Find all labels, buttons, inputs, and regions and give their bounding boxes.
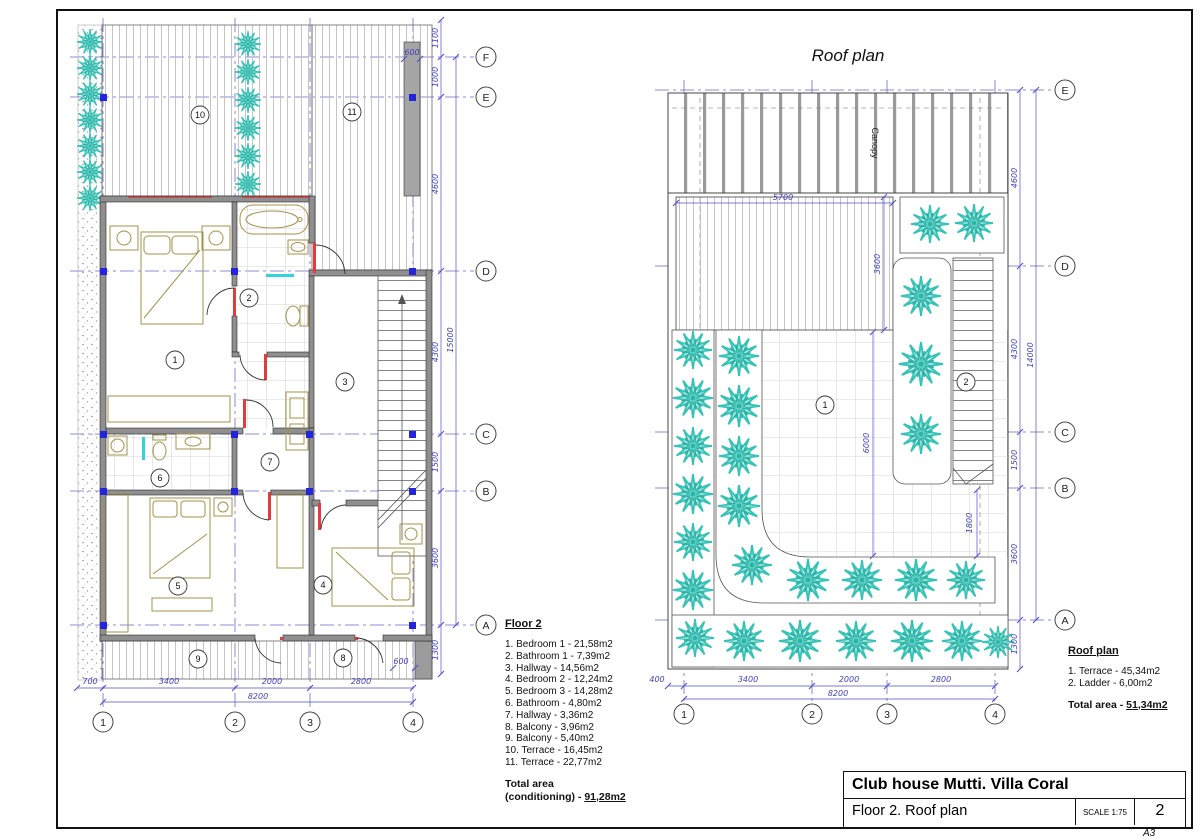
bathroom2-tiles: [106, 434, 232, 490]
legend-item: 5. Bedroom 3 - 14,28m2: [505, 686, 660, 698]
grid-label: E: [1061, 85, 1068, 97]
room-label: 2: [963, 377, 968, 387]
grid-label: B: [482, 486, 489, 498]
dim-label: 1000: [431, 67, 440, 87]
dim-label: 8200: [248, 692, 268, 701]
grid-label: A: [482, 620, 489, 632]
legend-item: 10. Terrace - 16,45m2: [505, 745, 660, 757]
legend-item: 2. Bathroom 1 - 7,39m2: [505, 651, 660, 663]
dim-label: 6000: [862, 433, 871, 453]
floor2-legend-title: Floor 2: [505, 618, 660, 630]
bathroom1-tiles: [237, 202, 309, 428]
project-title: Club house Mutti. Villa Coral: [844, 772, 1185, 799]
roof-total-area: Total area - 51,34m2: [1068, 699, 1186, 712]
room-label: 2: [246, 293, 251, 303]
total-area-value: 91,28m2: [584, 791, 625, 803]
grid-label: 2: [809, 709, 815, 721]
grid-label: 3: [884, 709, 890, 721]
dim-label: 8200: [828, 689, 848, 698]
grid-label: 1: [681, 709, 687, 721]
legend-item: 9. Balcony - 5,40m2: [505, 733, 660, 745]
grid-label: 4: [410, 717, 416, 729]
total-area-prefix: (conditioning) -: [505, 791, 584, 803]
sheet-title: Floor 2. Roof plan: [844, 799, 1075, 825]
dim-label: 4600: [1010, 168, 1019, 188]
legend-item: 1. Bedroom 1 - 21,58m2: [505, 639, 660, 651]
legend-item: 8. Balcony - 3,96m2: [505, 722, 660, 734]
roof-plan: Roof plan Canopy: [649, 46, 1075, 724]
total-area-value: 51,34m2: [1126, 699, 1167, 711]
roof-legend-title: Roof plan: [1068, 645, 1186, 657]
canopy-label: Canopy: [870, 127, 880, 159]
room-label: 4: [320, 580, 325, 590]
room-label: 1: [172, 355, 177, 365]
dim-label: 4300: [1010, 339, 1019, 359]
dim-label: 1500: [1010, 450, 1019, 470]
legend-item: 4. Bedroom 2 - 12,24m2: [505, 674, 660, 686]
room-label: 8: [340, 653, 345, 663]
legend-item: 3. Hallway - 14,56m2: [505, 663, 660, 675]
dim-label: 4600: [431, 174, 440, 194]
room-label: 11: [347, 107, 356, 117]
grid-label: 3: [307, 717, 313, 729]
roof-striped-area: [676, 197, 893, 330]
legend-item: 7. Hallway - 3,36m2: [505, 710, 660, 722]
grid-label: 2: [232, 717, 238, 729]
roof-legend: Roof plan 1. Terrace - 45,34m2 2. Ladder…: [1068, 645, 1186, 712]
dim-label: 600: [404, 48, 419, 57]
floor2-total-area: Total area (conditioning) - 91,28m2: [505, 778, 660, 804]
legend-item: 2. Ladder - 6,00m2: [1068, 678, 1186, 690]
paper-size-label: A3: [1143, 828, 1155, 839]
dim-label: 2800: [351, 677, 371, 686]
dim-label: 3600: [431, 548, 440, 568]
drawing-sheet: 700 3400 2000 2800 8200 1100 1000 4600 4…: [0, 0, 1200, 840]
dim-label: 15000: [446, 327, 455, 352]
legend-item: 1. Terrace - 45,34m2: [1068, 666, 1186, 678]
dim-label: 3600: [1010, 544, 1019, 564]
total-area-label: Total area -: [1068, 699, 1126, 711]
grid-label: 4: [992, 709, 998, 721]
dim-label: 4300: [431, 342, 440, 362]
grid-label: F: [483, 52, 489, 64]
dim-label: 5700: [773, 193, 793, 202]
room-label: 7: [267, 457, 272, 467]
room-label: 1: [822, 400, 827, 410]
dim-label: 1100: [431, 28, 440, 48]
dim-label: 3400: [159, 677, 179, 686]
dim-label: 1300: [431, 640, 440, 660]
dim-label: 2000: [839, 675, 859, 684]
dim-label: 3600: [873, 254, 882, 274]
scale-cell: SCALE 1:75: [1075, 799, 1134, 825]
scale-label: SCALE: [1083, 808, 1109, 817]
room-label: 9: [195, 654, 200, 664]
dim-label: 700: [82, 677, 97, 686]
floor2-plan: 700 3400 2000 2800 8200 1100 1000 4600 4…: [70, 17, 496, 732]
dim-label: 1300: [1010, 634, 1019, 654]
grid-label: C: [482, 429, 490, 441]
legend-item: 6. Bathroom - 4,80m2: [505, 698, 660, 710]
dim-label: 14000: [1026, 342, 1035, 367]
grid-label: E: [482, 92, 489, 104]
dim-label: 1800: [965, 513, 974, 533]
room-label: 3: [342, 377, 347, 387]
dim-label: 2800: [931, 675, 951, 684]
scale-value: 1:75: [1111, 808, 1127, 817]
grid-label: B: [1061, 483, 1068, 495]
grid-label: D: [482, 266, 490, 278]
roof-legend-items: 1. Terrace - 45,34m2 2. Ladder - 6,00m2: [1068, 666, 1186, 690]
floor2-stairs: [378, 276, 426, 556]
grid-label: A: [1061, 615, 1068, 627]
room-label: 10: [195, 110, 205, 120]
floor2-legend-items: 1. Bedroom 1 - 21,58m2 2. Bathroom 1 - 7…: [505, 639, 660, 769]
grid-label: 1: [100, 717, 106, 729]
total-area-label: Total area: [505, 778, 660, 791]
sheet-number: 2: [1134, 799, 1185, 825]
title-block: Club house Mutti. Villa Coral Floor 2. R…: [843, 771, 1186, 828]
grid-label: C: [1061, 427, 1069, 439]
legend-item: 11. Terrace - 22,77m2: [505, 757, 660, 769]
room-label: 5: [175, 581, 180, 591]
dim-label: 1500: [431, 452, 440, 472]
room-label: 6: [157, 473, 162, 483]
floor2-legend: Floor 2 1. Bedroom 1 - 21,58m2 2. Bathro…: [505, 618, 660, 804]
roof-stair: [953, 258, 993, 484]
grid-label: D: [1061, 261, 1069, 273]
dim-label: 2000: [262, 677, 282, 686]
dim-label: 600: [393, 657, 408, 666]
dim-label: 3400: [738, 675, 758, 684]
roof-plan-title: Roof plan: [812, 46, 885, 65]
